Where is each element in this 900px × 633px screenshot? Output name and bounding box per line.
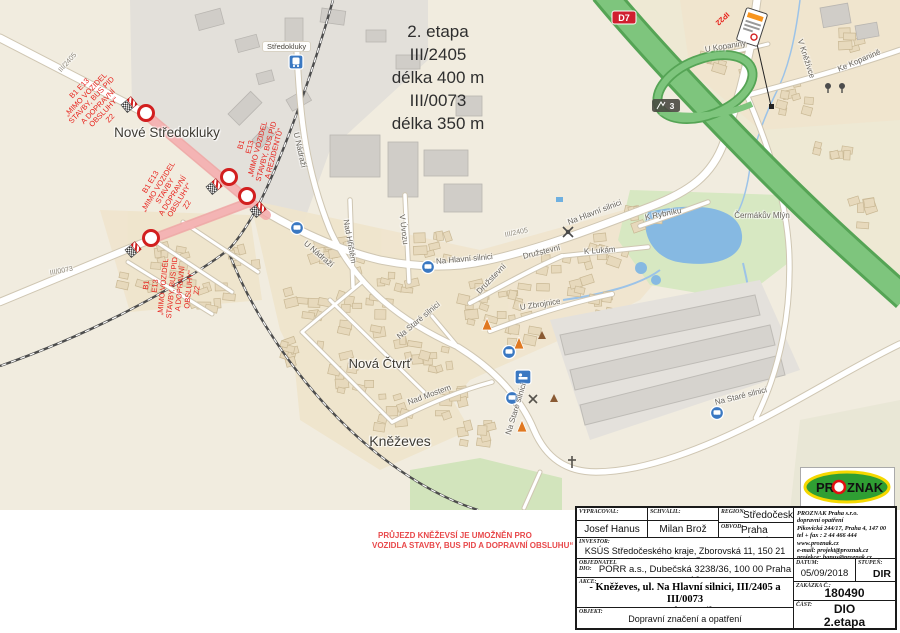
label-schvalil: SCHVÁLIL: — [650, 509, 681, 515]
company-line: Pikovická 244/17, Praha 4, 147 00 — [797, 525, 895, 532]
transit-note-line2: VOZIDLA STAVBY, BUS PID A DOPRAVNÍ OBSLU… — [372, 541, 573, 551]
bus-stop-icon — [422, 261, 435, 274]
proznak-logo: PR ZNAK — [800, 467, 895, 507]
value-obvod: Praha západ — [741, 525, 793, 538]
value-datum: 05/09/2018 — [794, 568, 855, 579]
label-vypracoval: VYPRACOVAL: — [579, 509, 619, 515]
b1-sign — [139, 106, 154, 121]
label-stupen: STUPEŇ: — [858, 560, 882, 566]
label-obvod: OBVOD: — [721, 524, 743, 530]
traffic-plan-sheet: D7 3 — [0, 0, 900, 633]
value-cast: DIO 2.etapa — [794, 603, 895, 628]
company-line: tel + fax : 2 44 466 444 — [797, 532, 895, 539]
value-akce-line1: - Kněževes, ul. Na Hlavní silnici, III/2… — [577, 582, 793, 606]
stage-note: 2. etapa III/2405 délka 400 m III/0073 d… — [378, 20, 498, 135]
label-datum: DATUM: — [796, 560, 819, 566]
transit-note: PRŮJEZD KNĚŽEVSÍ JE UMOŽNĚN PRO VOZIDLA … — [372, 531, 573, 551]
svg-text:D7: D7 — [618, 13, 630, 23]
station-label-stredokluky: Středokluky — [262, 41, 311, 52]
d7-shield: D7 — [612, 11, 636, 24]
place-label-nove-stredokluky: Nové Středokluky — [107, 126, 227, 140]
value-objekt: Dopravní značení a opatření — [577, 614, 793, 624]
company-line: e-mail: projekt@proznak.cz — [797, 547, 895, 554]
place-label-knezeves: Kněževes — [350, 434, 450, 448]
svg-text:3: 3 — [670, 101, 675, 111]
bus-stop-icon — [291, 222, 304, 235]
company-line: dopravní opatření — [797, 517, 895, 524]
label-region: REGION: — [721, 509, 745, 515]
place-label-nova-ctvrt: Nová Čtvrť — [330, 357, 430, 371]
company-name: PROZNAK Praha s.r.o. — [797, 510, 895, 517]
closure-annotation-south: B1 E13 „MIMO VOZIDEL STAVBY, BUS PID A D… — [137, 235, 207, 341]
value-region: Středočeský — [743, 510, 793, 521]
label-investor: INVESTOR: — [579, 539, 610, 545]
value-objednatel: PORR a.s., Dubečská 3238/36, 100 00 Prah… — [597, 564, 793, 578]
train-station-icon — [289, 55, 303, 69]
map-canvas: D7 3 — [0, 0, 900, 510]
svg-text:ZNAK: ZNAK — [847, 480, 884, 495]
place-label-cermakuv-mlyn: Čermákův Mlýn — [722, 211, 802, 220]
title-block: VYPRACOVAL: SCHVÁLIL: REGION: Středočesk… — [575, 506, 897, 630]
bus-stop-icon — [503, 346, 516, 359]
exit-badge: 3 — [652, 99, 680, 112]
company-line: www.proznak.cz — [797, 540, 895, 547]
hotel-icon — [515, 370, 531, 384]
transit-note-line1: PRŮJEZD KNĚŽEVSÍ JE UMOŽNĚN PRO — [372, 531, 573, 541]
value-zakazka: 180490 — [794, 586, 895, 600]
value-investor: KSÚS Středočeského kraje, Zborovská 11, … — [577, 546, 793, 559]
value-stupen: DIR — [856, 568, 895, 580]
bus-stop-icon — [711, 407, 724, 420]
value-schvalil: Milan Brož — [648, 524, 718, 535]
value-vypracoval: Josef Hanus — [577, 524, 647, 535]
